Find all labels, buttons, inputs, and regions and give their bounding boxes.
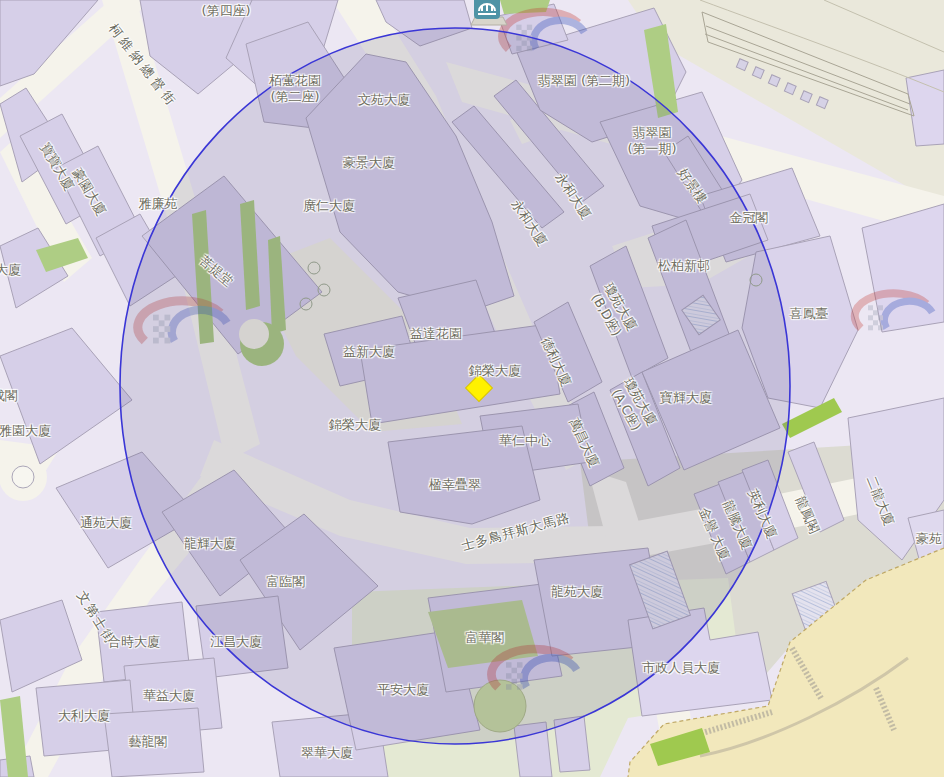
radius-circle [120,28,790,744]
map-base [0,0,944,777]
map-canvas[interactable]: (第四座)柯維納總督街寶寶大廈豪園大廈雅廉苑栢蕙花園 (第二座)文苑大廈豪景大廈… [0,0,944,777]
